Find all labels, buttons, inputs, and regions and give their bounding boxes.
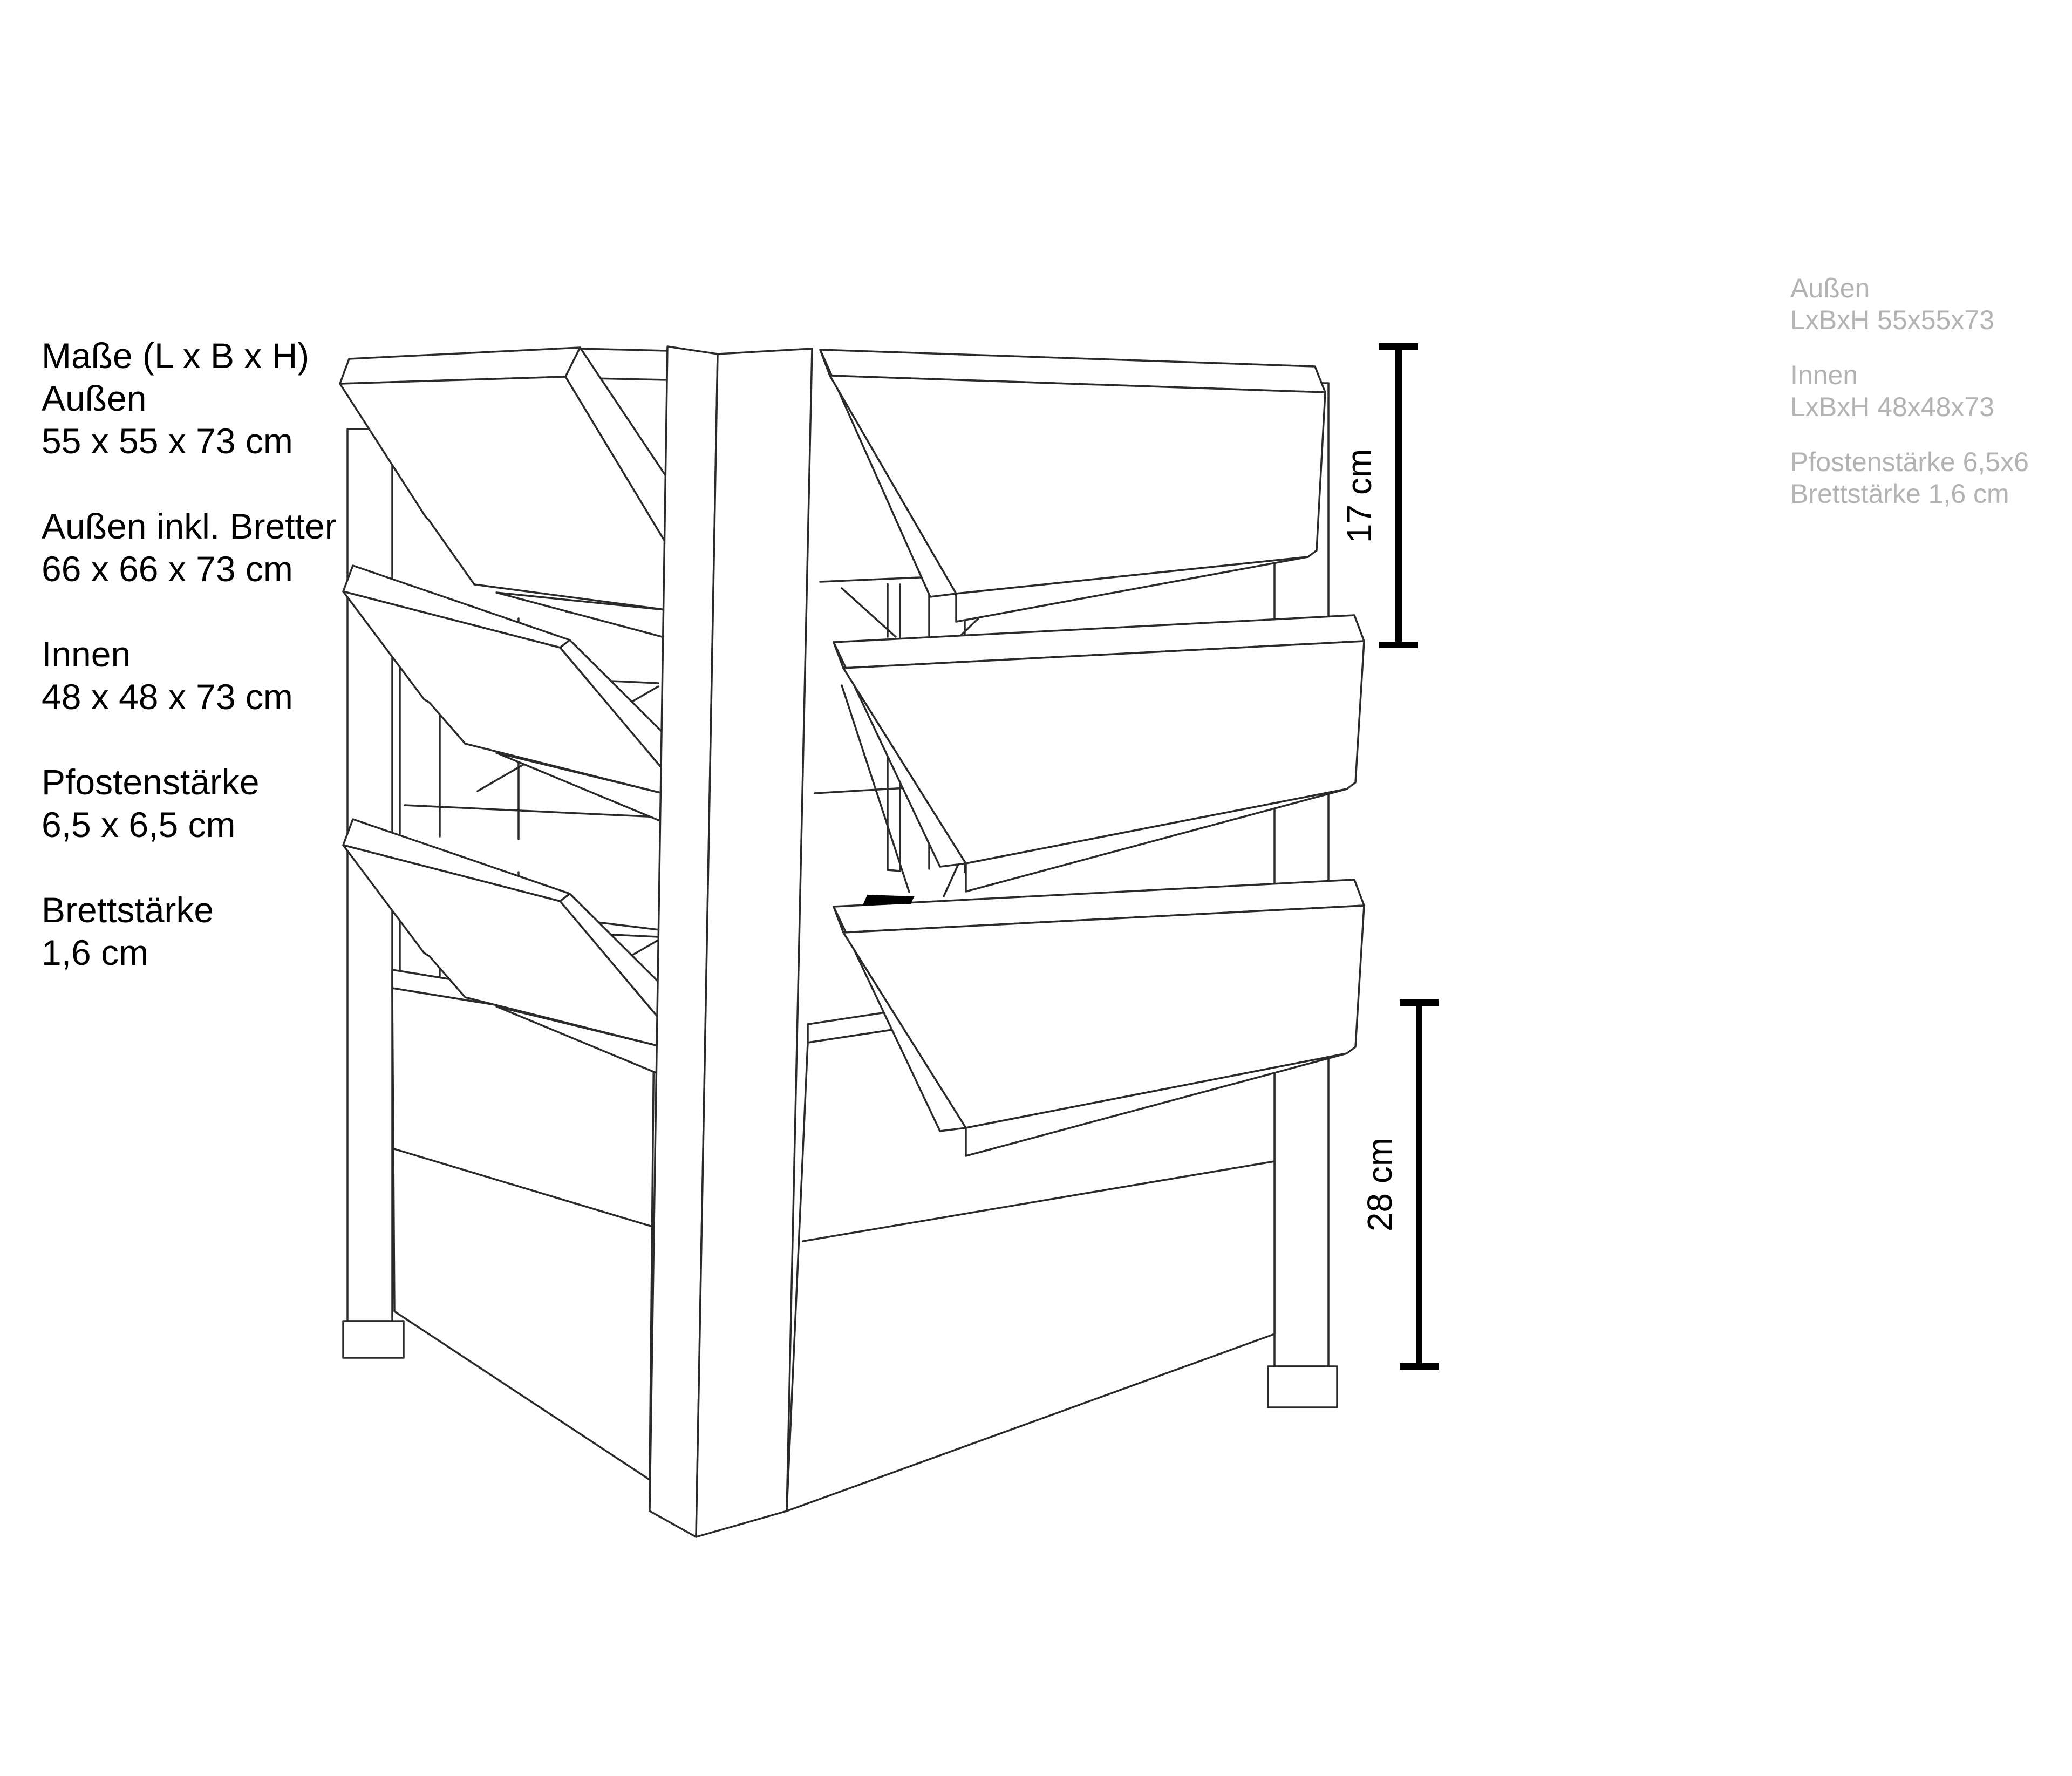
planter-illustration: 17 cm 28 cm [0, 0, 2072, 1776]
dimension-line-28cm: 28 cm [1360, 1003, 1439, 1366]
drain-slot [863, 895, 914, 905]
dimension-label-17cm: 17 cm [1340, 449, 1379, 543]
corner-post [650, 346, 812, 1537]
dimension-line-17cm: 17 cm [1340, 346, 1418, 645]
dimension-label-28cm: 28 cm [1360, 1138, 1399, 1231]
shelf-tiers-right [820, 350, 1364, 1156]
